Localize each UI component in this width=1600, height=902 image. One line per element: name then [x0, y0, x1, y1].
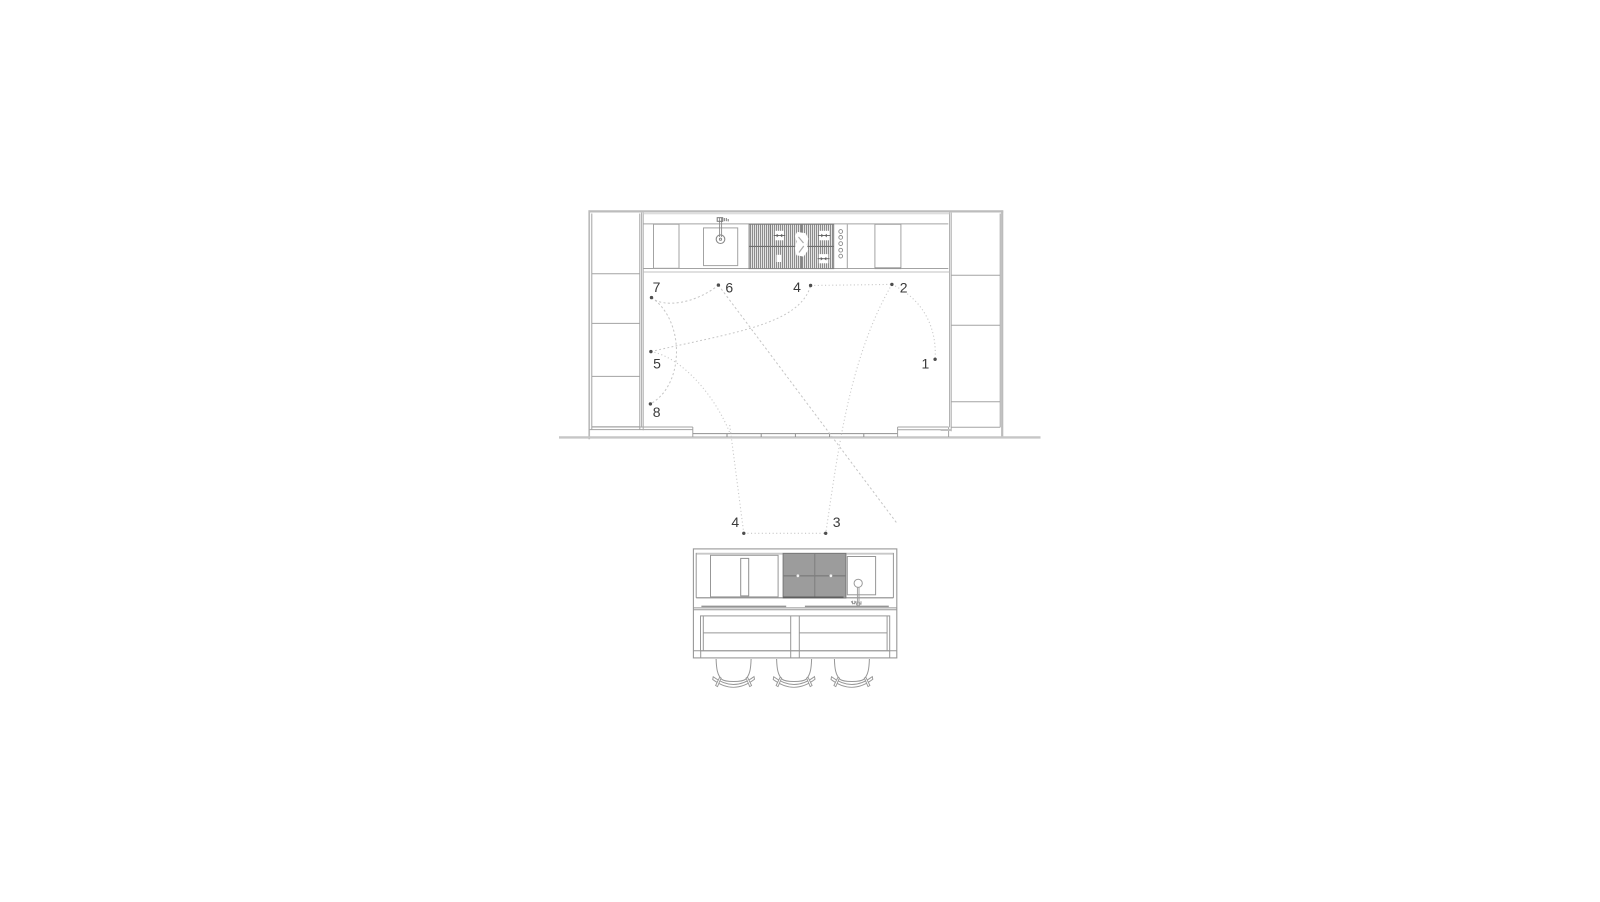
svg-text:7: 7	[653, 279, 661, 295]
svg-text:1: 1	[922, 356, 930, 372]
svg-text:8: 8	[653, 404, 661, 420]
svg-text:3: 3	[833, 514, 841, 530]
svg-text:4: 4	[793, 279, 801, 295]
svg-text:6: 6	[725, 279, 733, 295]
svg-text:4: 4	[731, 514, 739, 530]
svg-text:5: 5	[653, 355, 661, 371]
svg-text:2: 2	[900, 280, 908, 296]
